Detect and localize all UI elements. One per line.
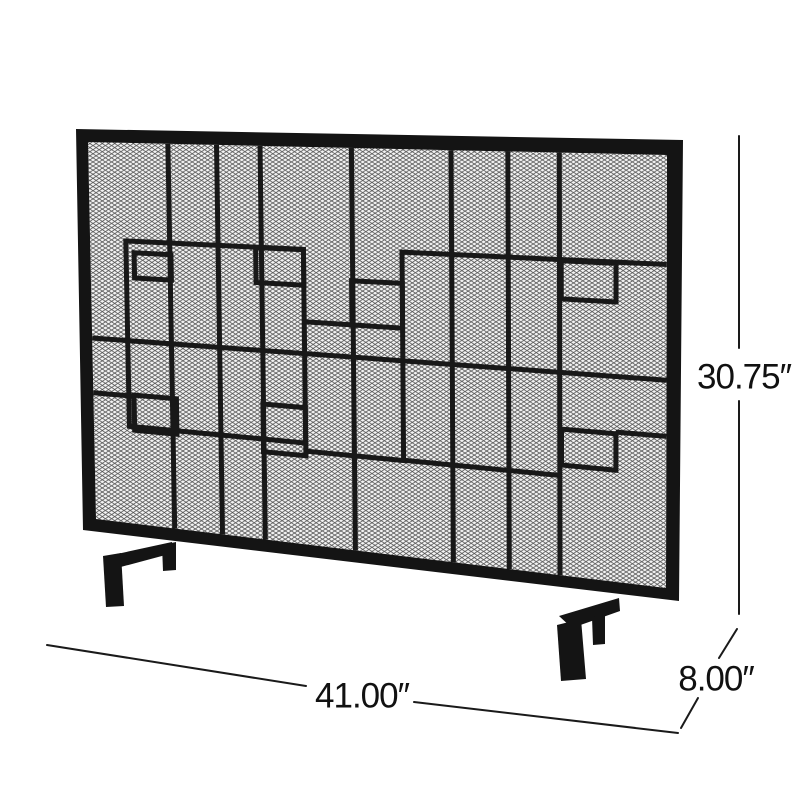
product-dimension-diagram: 41.00″ 30.75″ 8.00″ <box>0 0 800 800</box>
height-dimension-label: 30.75″ <box>697 360 791 395</box>
depth-dimension-line-upper <box>719 629 737 658</box>
depth-dimension-label: 8.00″ <box>678 662 754 697</box>
depth-dimension-line-lower <box>681 698 698 728</box>
width-dimension-label: 41.00″ <box>315 679 409 714</box>
width-dimension-line-right <box>414 702 678 733</box>
width-dimension-line-left <box>47 645 306 686</box>
